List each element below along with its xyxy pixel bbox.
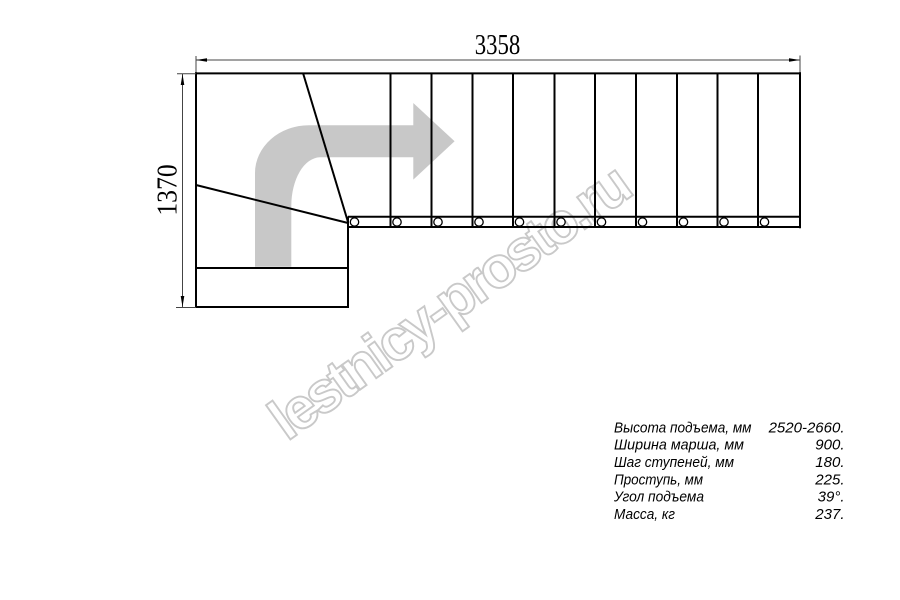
svg-text:225.: 225. — [814, 471, 844, 488]
svg-text:Ширина марша, мм: Ширина марша, мм — [614, 437, 744, 454]
svg-text:Угол подъема: Угол подъема — [613, 489, 704, 506]
svg-text:Проступь, мм: Проступь, мм — [614, 471, 703, 488]
svg-text:39°.: 39°. — [818, 489, 845, 506]
svg-text:900.: 900. — [815, 437, 844, 454]
svg-text:1370: 1370 — [151, 164, 183, 215]
svg-text:180.: 180. — [815, 454, 844, 471]
svg-text:237.: 237. — [814, 506, 844, 523]
svg-text:3358: 3358 — [475, 29, 521, 61]
svg-text:Шаг ступеней, мм: Шаг ступеней, мм — [614, 454, 734, 471]
svg-text:Масса, кг: Масса, кг — [614, 506, 676, 523]
svg-text:Высота подъема, мм: Высота подъема, мм — [614, 419, 752, 436]
svg-text:2520-2660.: 2520-2660. — [768, 419, 845, 436]
